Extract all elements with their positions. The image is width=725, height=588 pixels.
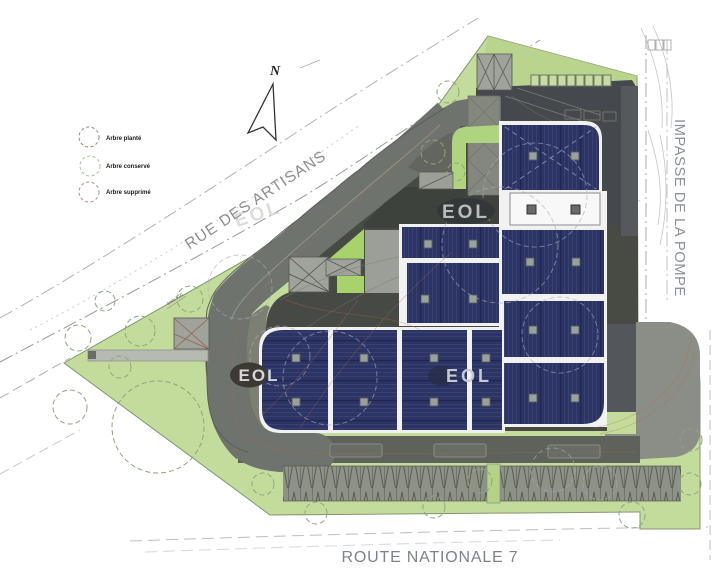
svg-text:N: N <box>269 64 281 79</box>
svg-text:EOL: EOL <box>442 202 490 223</box>
svg-text:IMPASSE DE LA POMPE: IMPASSE DE LA POMPE <box>671 119 687 297</box>
svg-text:ROUTE NATIONALE 7: ROUTE NATIONALE 7 <box>342 549 519 566</box>
svg-text:Arbre planté: Arbre planté <box>106 136 142 142</box>
svg-text:EOL: EOL <box>446 366 492 386</box>
svg-text:Arbre conservé: Arbre conservé <box>106 164 151 170</box>
svg-text:Arbre supprimé: Arbre supprimé <box>106 190 151 196</box>
svg-text:EOL: EOL <box>239 366 280 385</box>
